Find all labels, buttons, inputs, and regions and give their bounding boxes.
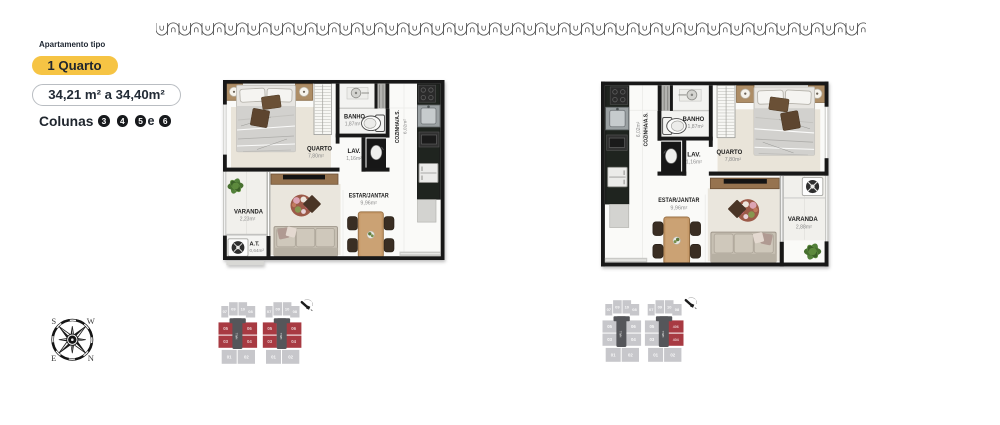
svg-text:02: 02 bbox=[288, 354, 293, 359]
svg-text:404: 404 bbox=[673, 338, 679, 342]
svg-text:COZINHA/A.S.: COZINHA/A.S. bbox=[395, 110, 401, 143]
svg-text:07: 07 bbox=[267, 309, 272, 314]
svg-text:ESTAR/JANTAR: ESTAR/JANTAR bbox=[349, 192, 389, 199]
svg-text:HALL: HALL bbox=[236, 332, 239, 339]
svg-text:BANHO: BANHO bbox=[344, 113, 365, 120]
svg-text:N: N bbox=[88, 353, 95, 363]
svg-text:W: W bbox=[87, 316, 96, 326]
svg-text:03: 03 bbox=[223, 339, 228, 344]
svg-text:COZINHA/A.S.: COZINHA/A.S. bbox=[644, 112, 650, 146]
svg-text:6,02m²: 6,02m² bbox=[403, 119, 409, 134]
svg-text:10: 10 bbox=[667, 304, 672, 309]
svg-text:S: S bbox=[51, 316, 56, 326]
svg-text:02: 02 bbox=[244, 354, 249, 359]
svg-text:HALL: HALL bbox=[280, 332, 283, 339]
svg-text:06: 06 bbox=[631, 324, 636, 329]
svg-text:HALL: HALL bbox=[662, 330, 665, 337]
svg-text:07: 07 bbox=[649, 307, 654, 312]
svg-text:7,80m²: 7,80m² bbox=[308, 153, 324, 159]
svg-text:03: 03 bbox=[650, 337, 655, 342]
svg-text:06: 06 bbox=[247, 326, 252, 331]
svg-text:09: 09 bbox=[275, 306, 280, 311]
svg-text:09: 09 bbox=[231, 306, 236, 311]
svg-text:10: 10 bbox=[625, 304, 630, 309]
svg-text:10: 10 bbox=[285, 306, 290, 311]
svg-text:VARANDA: VARANDA bbox=[788, 216, 818, 223]
svg-text:05: 05 bbox=[650, 324, 655, 329]
svg-text:04: 04 bbox=[291, 339, 296, 344]
svg-text:08: 08 bbox=[248, 309, 253, 314]
svg-text:09: 09 bbox=[658, 304, 663, 309]
svg-text:05: 05 bbox=[607, 324, 612, 329]
svg-text:1,16m²: 1,16m² bbox=[686, 160, 702, 166]
svg-text:01: 01 bbox=[271, 354, 276, 359]
svg-text:VARANDA: VARANDA bbox=[234, 209, 263, 216]
svg-text:2,88m²: 2,88m² bbox=[796, 224, 812, 230]
svg-text:09: 09 bbox=[615, 304, 620, 309]
svg-text:05: 05 bbox=[267, 326, 272, 331]
svg-text:2,23m²: 2,23m² bbox=[240, 217, 256, 223]
svg-text:HALL: HALL bbox=[620, 330, 623, 337]
svg-text:01: 01 bbox=[653, 352, 658, 357]
svg-text:07: 07 bbox=[607, 307, 612, 312]
svg-text:04: 04 bbox=[631, 337, 636, 342]
svg-text:07: 07 bbox=[223, 309, 228, 314]
svg-text:0,64m²: 0,64m² bbox=[250, 248, 265, 254]
svg-text:9,96m²: 9,96m² bbox=[360, 201, 377, 207]
svg-text:08: 08 bbox=[675, 307, 680, 312]
svg-text:LAV.: LAV. bbox=[348, 148, 361, 155]
svg-text:02: 02 bbox=[670, 352, 675, 357]
svg-text:06: 06 bbox=[291, 326, 296, 331]
svg-text:08: 08 bbox=[293, 309, 298, 314]
svg-text:1,87m²: 1,87m² bbox=[345, 121, 361, 127]
svg-text:406: 406 bbox=[673, 325, 679, 329]
svg-text:05: 05 bbox=[223, 326, 228, 331]
svg-text:6,02m²: 6,02m² bbox=[636, 121, 642, 137]
svg-text:01: 01 bbox=[611, 352, 616, 357]
svg-text:02: 02 bbox=[628, 352, 633, 357]
svg-text:7,80m²: 7,80m² bbox=[725, 157, 742, 163]
svg-text:03: 03 bbox=[607, 337, 612, 342]
svg-text:1,16m²: 1,16m² bbox=[346, 156, 362, 162]
svg-text:04: 04 bbox=[247, 339, 252, 344]
svg-text:QUARTO: QUARTO bbox=[717, 149, 743, 156]
svg-text:1,87m²: 1,87m² bbox=[688, 124, 704, 130]
svg-text:10: 10 bbox=[241, 306, 246, 311]
svg-text:A.T.: A.T. bbox=[250, 242, 260, 248]
svg-text:LAV.: LAV. bbox=[687, 152, 701, 159]
svg-text:BANHO: BANHO bbox=[683, 116, 705, 123]
svg-text:9,96m²: 9,96m² bbox=[670, 206, 687, 212]
svg-text:03: 03 bbox=[267, 339, 272, 344]
svg-text:ESTAR/JANTAR: ESTAR/JANTAR bbox=[658, 197, 699, 204]
svg-text:QUARTO: QUARTO bbox=[307, 146, 332, 153]
svg-text:E: E bbox=[51, 353, 56, 363]
svg-text:01: 01 bbox=[227, 354, 232, 359]
svg-text:08: 08 bbox=[632, 307, 637, 312]
